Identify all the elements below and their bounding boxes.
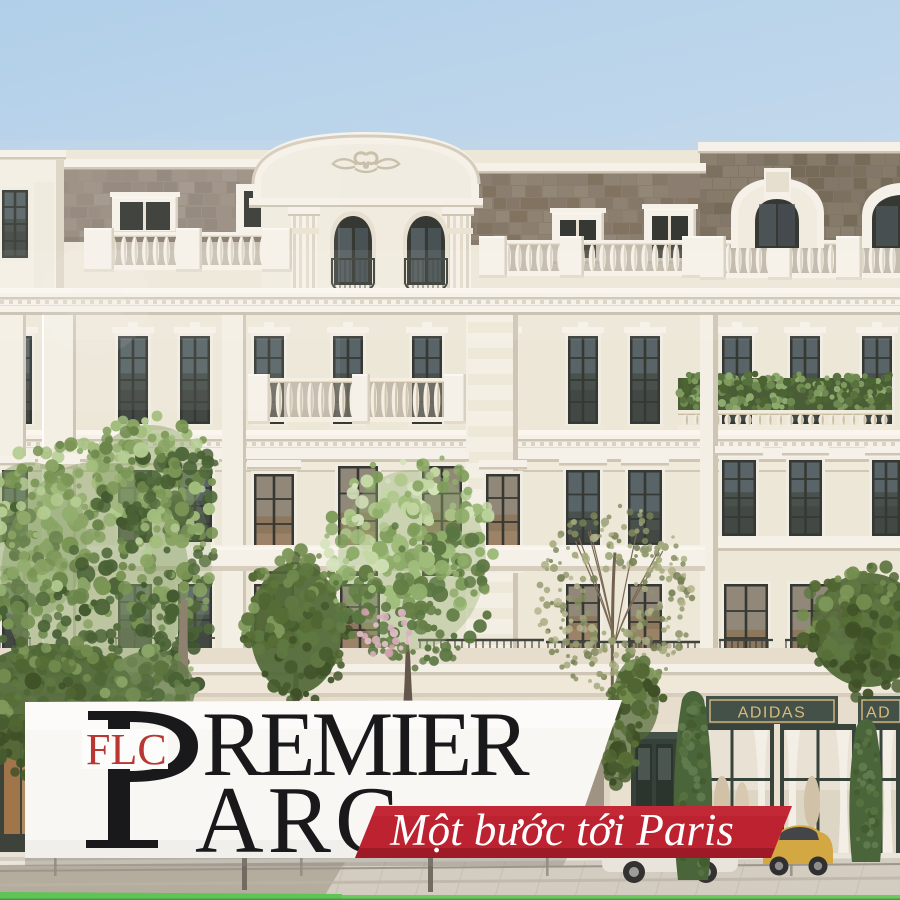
svg-text:Một bước tới Paris: Một bước tới Paris bbox=[389, 805, 734, 855]
svg-text:FLC: FLC bbox=[86, 725, 167, 774]
